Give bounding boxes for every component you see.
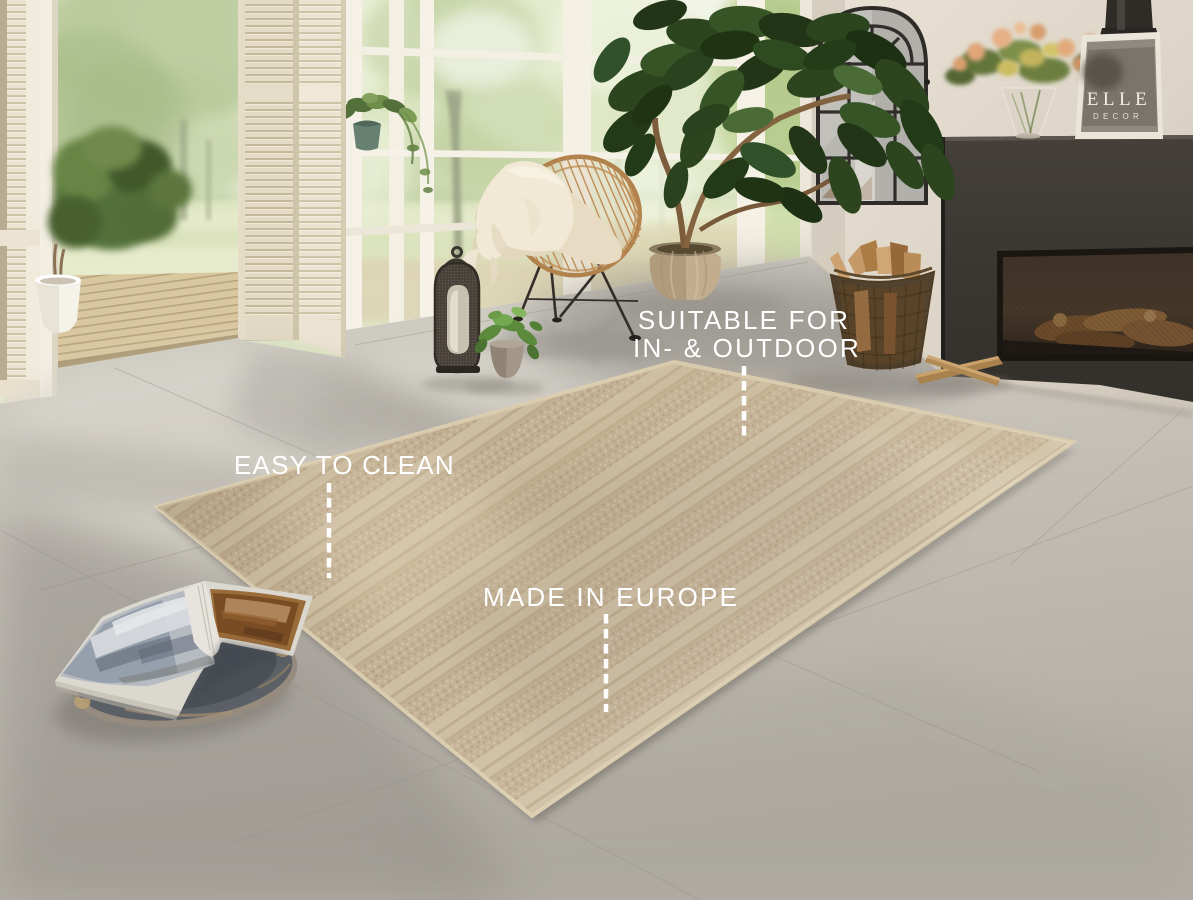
svg-text:DECOR: DECOR — [1093, 112, 1143, 121]
svg-text:IN- & OUTDOOR: IN- & OUTDOOR — [633, 333, 861, 363]
svg-text:ELLE: ELLE — [1087, 89, 1151, 110]
svg-text:EASY TO CLEAN: EASY TO CLEAN — [234, 450, 455, 480]
svg-text:SUITABLE FOR: SUITABLE FOR — [638, 305, 850, 335]
svg-text:MADE IN EUROPE: MADE IN EUROPE — [483, 582, 739, 612]
